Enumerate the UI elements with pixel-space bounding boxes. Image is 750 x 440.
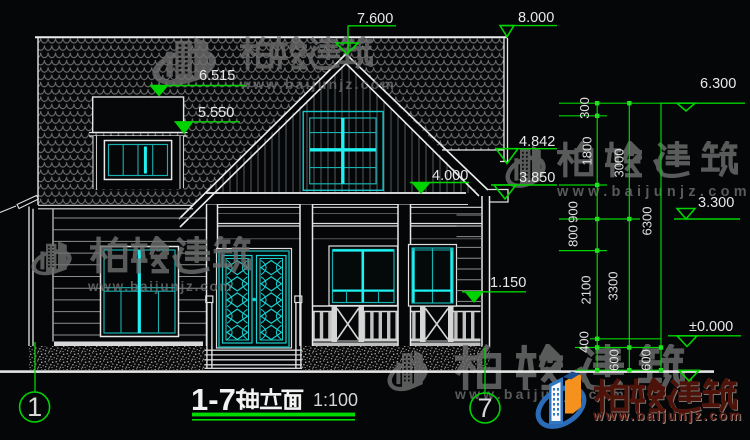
svg-text:1800: 1800: [580, 137, 595, 166]
svg-text:6.300: 6.300: [700, 76, 736, 92]
svg-text:www.baijunjz.com: www.baijunjz.com: [87, 279, 233, 294]
svg-text:4.842: 4.842: [519, 134, 555, 150]
svg-text:8.000: 8.000: [518, 10, 554, 26]
svg-text:4.000: 4.000: [432, 168, 468, 184]
svg-text:5.550: 5.550: [198, 105, 234, 121]
svg-text:3.850: 3.850: [519, 170, 555, 186]
svg-text:600: 600: [607, 349, 622, 371]
svg-text:300: 300: [577, 97, 592, 119]
svg-text:3000: 3000: [612, 149, 627, 178]
svg-text:1:100: 1:100: [313, 390, 358, 410]
svg-text:3300: 3300: [606, 272, 621, 301]
svg-text:3.300: 3.300: [698, 195, 734, 211]
svg-text:900: 900: [566, 201, 581, 223]
svg-text:±0.000: ±0.000: [689, 319, 733, 335]
svg-text:6.515: 6.515: [199, 68, 235, 84]
svg-text:1.150: 1.150: [490, 275, 526, 291]
svg-text:600: 600: [639, 349, 654, 371]
svg-text:www.baijunjz.com: www.baijunjz.com: [239, 76, 396, 92]
svg-text:7: 7: [477, 393, 492, 423]
svg-text:800: 800: [566, 225, 581, 247]
svg-text:2100: 2100: [579, 276, 594, 305]
svg-text:400: 400: [577, 331, 592, 353]
svg-text:7.600: 7.600: [357, 11, 393, 27]
svg-text:www.baijunjz.com: www.baijunjz.com: [592, 408, 743, 423]
svg-text:1: 1: [27, 392, 42, 422]
svg-text:6300: 6300: [640, 207, 655, 236]
svg-text:1-7: 1-7: [191, 382, 236, 417]
